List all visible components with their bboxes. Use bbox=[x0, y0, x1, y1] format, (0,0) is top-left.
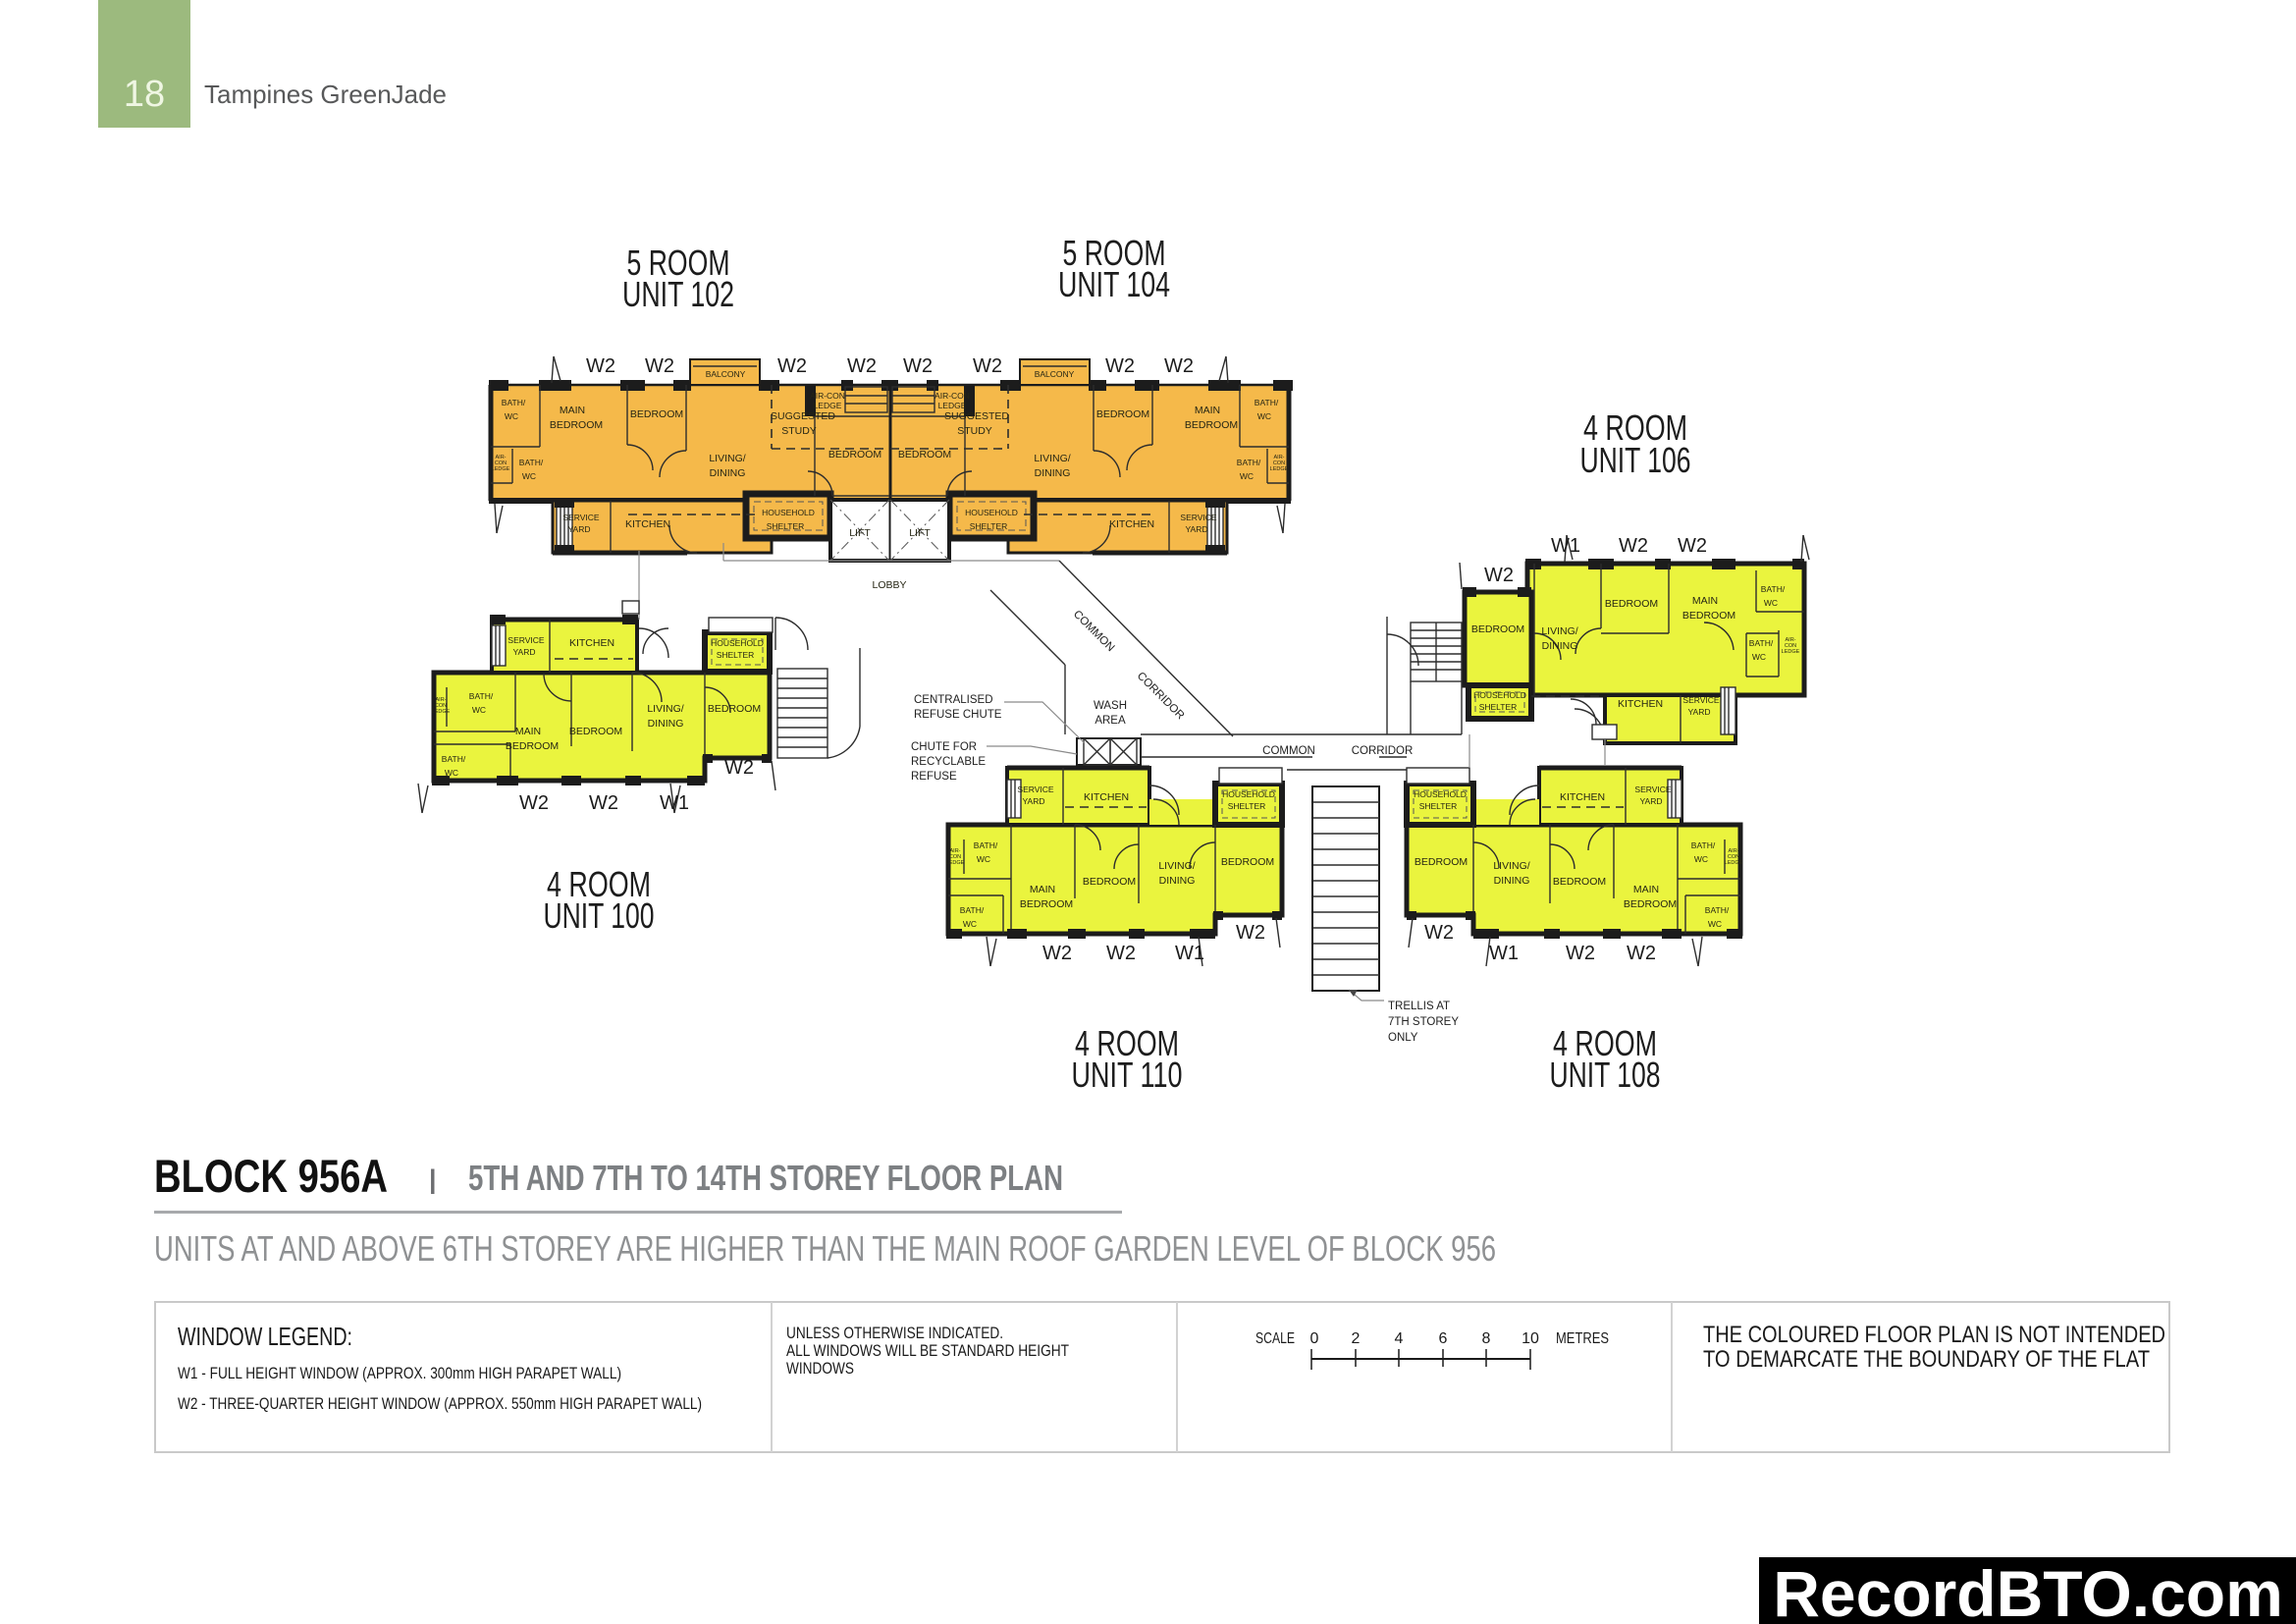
svg-text:WC: WC bbox=[963, 919, 977, 929]
svg-text:W2: W2 bbox=[1619, 535, 1648, 557]
svg-text:CENTRALISED: CENTRALISED bbox=[914, 694, 993, 706]
svg-text:BEDROOM: BEDROOM bbox=[1020, 898, 1073, 910]
svg-text:BEDROOM: BEDROOM bbox=[506, 740, 559, 752]
svg-text:MAIN: MAIN bbox=[1633, 884, 1659, 895]
svg-text:W2: W2 bbox=[973, 355, 1002, 377]
svg-text:LEDGE: LEDGE bbox=[946, 860, 965, 866]
svg-text:CORRIDOR: CORRIDOR bbox=[1352, 745, 1414, 757]
svg-text:18: 18 bbox=[124, 74, 165, 115]
svg-text:MAIN: MAIN bbox=[515, 726, 541, 737]
svg-text:BATH/: BATH/ bbox=[442, 754, 466, 764]
svg-text:BEDROOM: BEDROOM bbox=[1185, 419, 1238, 431]
svg-text:MAIN: MAIN bbox=[1030, 884, 1055, 895]
svg-text:STUDY: STUDY bbox=[957, 425, 992, 437]
svg-text:LIFT: LIFT bbox=[909, 527, 931, 539]
svg-text:8: 8 bbox=[1482, 1330, 1491, 1347]
svg-text:LIVING/: LIVING/ bbox=[1158, 860, 1195, 872]
svg-text:BEDROOM: BEDROOM bbox=[1083, 876, 1136, 888]
svg-text:WC: WC bbox=[1708, 919, 1722, 929]
svg-text:ALL WINDOWS WILL BE STANDARD H: ALL WINDOWS WILL BE STANDARD HEIGHT bbox=[786, 1342, 1069, 1360]
svg-text:WC: WC bbox=[445, 768, 458, 778]
svg-text:WC: WC bbox=[1257, 411, 1271, 421]
svg-text:BATH/: BATH/ bbox=[469, 691, 494, 701]
svg-text:BEDROOM: BEDROOM bbox=[1605, 598, 1658, 610]
svg-text:BATH/: BATH/ bbox=[1749, 638, 1774, 648]
svg-text:BEDROOM: BEDROOM bbox=[898, 449, 951, 460]
svg-text:W2: W2 bbox=[777, 355, 807, 377]
svg-text:LEDGE: LEDGE bbox=[1725, 860, 1743, 866]
svg-text:SERVICE: SERVICE bbox=[1180, 513, 1216, 522]
svg-text:HOUSEHOLD: HOUSEHOLD bbox=[1414, 789, 1467, 799]
svg-text:BEDROOM: BEDROOM bbox=[708, 703, 761, 715]
svg-text:WINDOWS: WINDOWS bbox=[786, 1360, 854, 1378]
svg-text:BALCONY: BALCONY bbox=[1035, 369, 1075, 379]
svg-text:BATH/: BATH/ bbox=[1237, 458, 1261, 467]
svg-text:WC: WC bbox=[977, 854, 990, 864]
svg-text:RECYCLABLE: RECYCLABLE bbox=[911, 756, 986, 768]
svg-text:W2 - THREE-QUARTER HEIGHT WIND: W2 - THREE-QUARTER HEIGHT WINDOW (APPROX… bbox=[178, 1394, 702, 1413]
svg-text:W2: W2 bbox=[1164, 355, 1194, 377]
svg-text:LIVING/: LIVING/ bbox=[647, 703, 683, 715]
svg-text:BATH/: BATH/ bbox=[974, 840, 998, 850]
svg-text:W2: W2 bbox=[1678, 535, 1707, 557]
svg-text:WC: WC bbox=[505, 411, 518, 421]
svg-text:BATH/: BATH/ bbox=[1255, 398, 1279, 407]
svg-text:WC: WC bbox=[522, 471, 536, 481]
svg-text:AREA: AREA bbox=[1095, 715, 1126, 727]
svg-text:YARD: YARD bbox=[1688, 707, 1711, 717]
svg-text:UNIT 108: UNIT 108 bbox=[1550, 1055, 1661, 1095]
svg-text:YARD: YARD bbox=[513, 647, 536, 657]
svg-text:BATH/: BATH/ bbox=[1705, 905, 1730, 915]
svg-text:BEDROOM: BEDROOM bbox=[1415, 856, 1468, 868]
svg-text:6: 6 bbox=[1439, 1330, 1448, 1347]
svg-text:BEDROOM: BEDROOM bbox=[1096, 408, 1149, 420]
svg-text:W1 - FULL HEIGHT WINDOW (APPRO: W1 - FULL HEIGHT WINDOW (APPROX. 300mm H… bbox=[178, 1364, 621, 1382]
svg-text:LIVING/: LIVING/ bbox=[1541, 625, 1577, 637]
svg-text:REFUSE: REFUSE bbox=[911, 771, 957, 783]
svg-text:SHELTER: SHELTER bbox=[1479, 702, 1518, 712]
svg-text:BATH/: BATH/ bbox=[502, 398, 526, 407]
svg-text:UNITS AT AND ABOVE 6TH STOREY: UNITS AT AND ABOVE 6TH STOREY ARE HIGHER… bbox=[154, 1228, 1496, 1269]
svg-text:W2: W2 bbox=[1566, 943, 1595, 964]
svg-text:W2: W2 bbox=[1627, 943, 1656, 964]
svg-text:W2: W2 bbox=[1424, 922, 1454, 944]
svg-text:LEDGE: LEDGE bbox=[432, 709, 451, 715]
svg-text:LEDGE: LEDGE bbox=[1782, 649, 1800, 655]
svg-text:BEDROOM: BEDROOM bbox=[569, 726, 622, 737]
svg-text:ONLY: ONLY bbox=[1388, 1032, 1418, 1044]
svg-text:7TH STOREY: 7TH STOREY bbox=[1388, 1016, 1459, 1028]
svg-text:SHELTER: SHELTER bbox=[970, 521, 1008, 531]
svg-text:STUDY: STUDY bbox=[781, 425, 817, 437]
svg-text:W2: W2 bbox=[724, 757, 754, 779]
svg-text:BLOCK 956A: BLOCK 956A bbox=[154, 1150, 388, 1202]
svg-text:SERVICE: SERVICE bbox=[507, 635, 544, 645]
svg-text:W1: W1 bbox=[660, 792, 689, 814]
svg-text:DINING: DINING bbox=[648, 718, 684, 730]
svg-text:BEDROOM: BEDROOM bbox=[828, 449, 881, 460]
svg-text:UNIT 104: UNIT 104 bbox=[1058, 264, 1170, 304]
svg-text:DINING: DINING bbox=[1494, 875, 1530, 887]
svg-text:CHUTE FOR: CHUTE FOR bbox=[911, 741, 977, 753]
svg-text:W2: W2 bbox=[1106, 943, 1136, 964]
svg-text:LEDGE: LEDGE bbox=[814, 401, 842, 410]
svg-text:UNIT 106: UNIT 106 bbox=[1580, 440, 1691, 480]
svg-text:W2: W2 bbox=[847, 355, 877, 377]
svg-text:HOUSEHOLD: HOUSEHOLD bbox=[1222, 789, 1275, 799]
svg-text:LEDGE: LEDGE bbox=[492, 466, 510, 472]
svg-text:WC: WC bbox=[1694, 854, 1708, 864]
svg-text:KITCHEN: KITCHEN bbox=[1084, 791, 1129, 803]
svg-text:W1: W1 bbox=[1489, 943, 1519, 964]
svg-text:DINING: DINING bbox=[1035, 467, 1071, 479]
svg-text:HOUSEHOLD: HOUSEHOLD bbox=[711, 638, 764, 648]
svg-text:BEDROOM: BEDROOM bbox=[1624, 898, 1677, 910]
svg-text:TRELLIS AT: TRELLIS AT bbox=[1388, 1001, 1450, 1012]
svg-text:DINING: DINING bbox=[710, 467, 746, 479]
svg-text:BATH/: BATH/ bbox=[1691, 840, 1716, 850]
svg-text:SCALE: SCALE bbox=[1255, 1330, 1295, 1347]
svg-text:W2: W2 bbox=[1484, 565, 1514, 586]
svg-text:THE COLOURED FLOOR PLAN IS NOT: THE COLOURED FLOOR PLAN IS NOT INTENDED bbox=[1703, 1322, 2165, 1348]
svg-text:SERVICE: SERVICE bbox=[1634, 785, 1671, 794]
svg-text:BATH/: BATH/ bbox=[519, 458, 544, 467]
svg-text:BEDROOM: BEDROOM bbox=[630, 408, 683, 420]
svg-text:YARD: YARD bbox=[1186, 524, 1208, 534]
svg-text:WC: WC bbox=[472, 705, 486, 715]
svg-text:UNIT 102: UNIT 102 bbox=[622, 274, 734, 314]
svg-text:BEDROOM: BEDROOM bbox=[1682, 610, 1735, 622]
svg-text:W1: W1 bbox=[1175, 943, 1204, 964]
svg-text:SUGGESTED: SUGGESTED bbox=[771, 410, 835, 422]
svg-text:W2: W2 bbox=[1236, 922, 1265, 944]
svg-text:MAIN: MAIN bbox=[1692, 595, 1718, 607]
svg-text:W2: W2 bbox=[1105, 355, 1135, 377]
svg-text:BEDROOM: BEDROOM bbox=[550, 419, 603, 431]
svg-text:TO DEMARCATE THE BOUNDARY OF T: TO DEMARCATE THE BOUNDARY OF THE FLAT bbox=[1703, 1346, 2150, 1373]
svg-text:LOBBY: LOBBY bbox=[872, 579, 906, 591]
svg-text:SHELTER: SHELTER bbox=[767, 521, 805, 531]
svg-text:WC: WC bbox=[1240, 471, 1254, 481]
svg-text:W2: W2 bbox=[519, 792, 549, 814]
svg-text:KITCHEN: KITCHEN bbox=[1618, 698, 1663, 710]
svg-text:DINING: DINING bbox=[1159, 875, 1196, 887]
svg-text:SHELTER: SHELTER bbox=[1228, 801, 1266, 811]
svg-text:YARD: YARD bbox=[568, 524, 591, 534]
svg-text:WC: WC bbox=[1764, 598, 1778, 608]
svg-text:WASH: WASH bbox=[1094, 700, 1127, 712]
svg-text:LEDGE: LEDGE bbox=[1270, 466, 1289, 472]
svg-text:SERVICE: SERVICE bbox=[1017, 785, 1053, 794]
svg-text:COMMON: COMMON bbox=[1262, 745, 1315, 757]
svg-text:SERVICE: SERVICE bbox=[562, 513, 599, 522]
svg-text:HOUSEHOLD: HOUSEHOLD bbox=[1473, 690, 1526, 700]
svg-text:Tampines GreenJade: Tampines GreenJade bbox=[204, 80, 447, 109]
svg-text:BATH/: BATH/ bbox=[960, 905, 985, 915]
svg-text:YARD: YARD bbox=[1640, 796, 1663, 806]
svg-text:SUGGESTED: SUGGESTED bbox=[944, 410, 1009, 422]
svg-text:REFUSE CHUTE: REFUSE CHUTE bbox=[914, 709, 1002, 721]
svg-text:LIVING/: LIVING/ bbox=[1493, 860, 1529, 872]
svg-text:SHELTER: SHELTER bbox=[1419, 801, 1458, 811]
svg-text:KITCHEN: KITCHEN bbox=[569, 637, 614, 649]
svg-text:UNIT 100: UNIT 100 bbox=[544, 895, 655, 936]
svg-text:MAIN: MAIN bbox=[560, 405, 585, 416]
svg-text:METRES: METRES bbox=[1556, 1330, 1609, 1347]
svg-text:0: 0 bbox=[1310, 1330, 1319, 1347]
svg-text:W2: W2 bbox=[903, 355, 933, 377]
svg-text:LIFT: LIFT bbox=[849, 527, 871, 539]
svg-text:HOUSEHOLD: HOUSEHOLD bbox=[762, 508, 815, 517]
svg-text:W2: W2 bbox=[645, 355, 674, 377]
svg-text:SHELTER: SHELTER bbox=[717, 650, 755, 660]
svg-text:DINING: DINING bbox=[1542, 640, 1578, 652]
svg-text:5TH AND 7TH TO 14TH STOREY FLO: 5TH AND 7TH TO 14TH STOREY FLOOR PLAN bbox=[468, 1158, 1063, 1198]
svg-text:W2: W2 bbox=[589, 792, 618, 814]
svg-text:AIR-CON: AIR-CON bbox=[810, 391, 845, 401]
svg-text:10: 10 bbox=[1522, 1330, 1539, 1347]
svg-text:KITCHEN: KITCHEN bbox=[1109, 518, 1154, 530]
svg-text:BATH/: BATH/ bbox=[1761, 584, 1786, 594]
svg-text:UNLESS OTHERWISE INDICATED.: UNLESS OTHERWISE INDICATED. bbox=[786, 1325, 1003, 1342]
svg-text:4: 4 bbox=[1395, 1330, 1404, 1347]
svg-text:BEDROOM: BEDROOM bbox=[1471, 623, 1524, 635]
svg-text:KITCHEN: KITCHEN bbox=[1560, 791, 1605, 803]
svg-text:HOUSEHOLD: HOUSEHOLD bbox=[965, 508, 1018, 517]
svg-text:UNIT 110: UNIT 110 bbox=[1072, 1055, 1183, 1095]
svg-text:W1: W1 bbox=[1551, 535, 1580, 557]
svg-text:LIVING/: LIVING/ bbox=[1034, 453, 1070, 464]
svg-text:BEDROOM: BEDROOM bbox=[1553, 876, 1606, 888]
svg-text:W2: W2 bbox=[1042, 943, 1072, 964]
svg-text:LIVING/: LIVING/ bbox=[709, 453, 745, 464]
svg-text:W2: W2 bbox=[586, 355, 615, 377]
svg-text:RecordBTO.com: RecordBTO.com bbox=[1773, 1557, 2283, 1624]
svg-text:LEDGE: LEDGE bbox=[938, 401, 967, 410]
svg-text:BEDROOM: BEDROOM bbox=[1221, 856, 1274, 868]
svg-text:SERVICE: SERVICE bbox=[1682, 695, 1719, 705]
svg-text:WC: WC bbox=[1752, 652, 1766, 662]
svg-text:WINDOW LEGEND:: WINDOW LEGEND: bbox=[178, 1322, 352, 1351]
svg-text:YARD: YARD bbox=[1023, 796, 1045, 806]
svg-text:MAIN: MAIN bbox=[1195, 405, 1220, 416]
svg-text:BALCONY: BALCONY bbox=[706, 369, 746, 379]
svg-text:|: | bbox=[429, 1164, 437, 1194]
svg-text:KITCHEN: KITCHEN bbox=[625, 518, 670, 530]
svg-text:2: 2 bbox=[1352, 1330, 1361, 1347]
svg-text:AIR-CON: AIR-CON bbox=[934, 391, 970, 401]
